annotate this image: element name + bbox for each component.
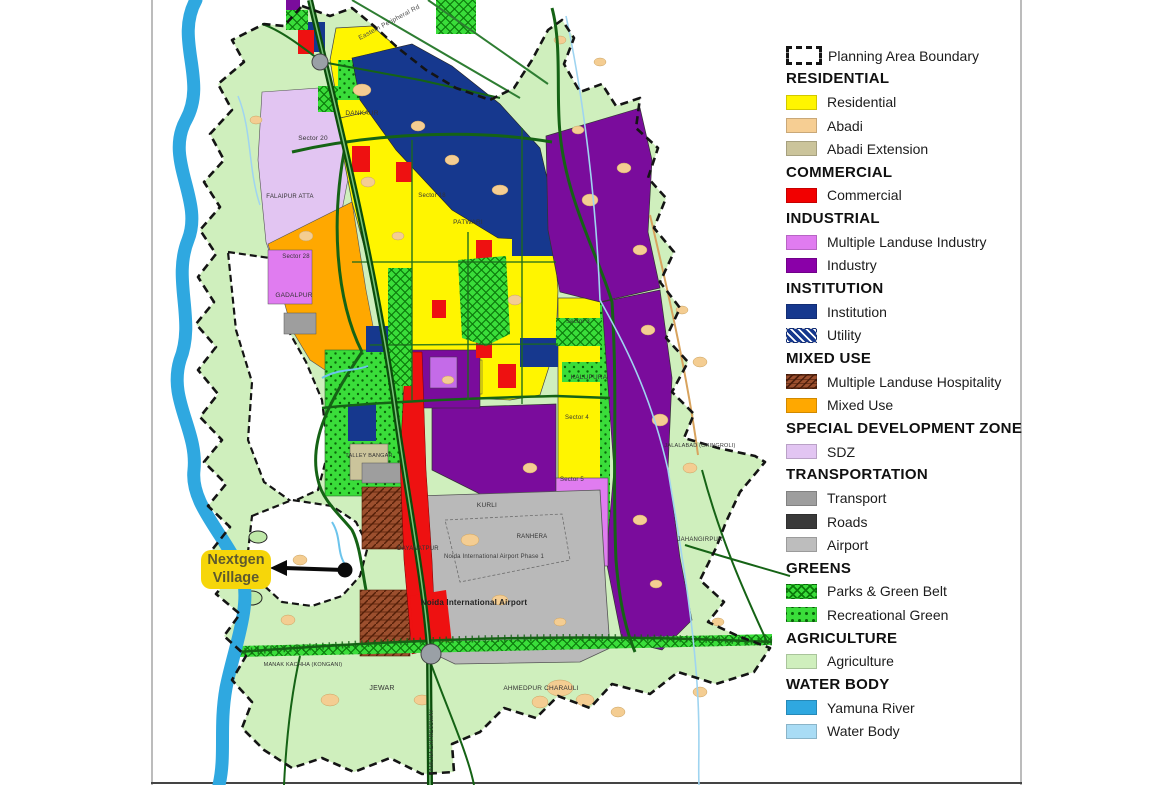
- map-label: YAMUNA EXPRESSWAY: [429, 709, 435, 775]
- legend-swatch: [786, 700, 817, 715]
- legend-item-label: Abadi Extension: [827, 141, 928, 157]
- legend-swatch: [786, 537, 817, 552]
- legend-header-agriculture: AGRICULTURE: [786, 626, 1030, 649]
- legend-item-label: Mixed Use: [827, 397, 893, 413]
- zone-commercial: [396, 162, 412, 182]
- interchange: [421, 644, 441, 664]
- legend-item-label: SDZ: [827, 444, 855, 460]
- legend-swatch: [786, 398, 817, 413]
- map-label: MANAK KACHHA (KONGANI): [264, 662, 343, 668]
- legend-header-water-body: WATER BODY: [786, 673, 1030, 696]
- zone-transport: [284, 313, 316, 334]
- legend-item-sdz: SDZ: [786, 440, 1030, 463]
- legend-item-label: Abadi: [827, 118, 863, 134]
- map-label: DAYANATPUR: [397, 546, 439, 552]
- legend: Planning Area Boundary RESIDENTIALReside…: [786, 44, 1030, 743]
- legend-swatch: [786, 444, 817, 459]
- legend-swatch: [786, 188, 817, 203]
- map-label: JEWAR: [369, 685, 394, 692]
- map-label: Sector 20: [298, 135, 328, 142]
- map-label: GADALPUR: [275, 292, 312, 299]
- legend-swatch: [786, 258, 817, 273]
- map-label: AHMEDPUR CHARAULI: [503, 685, 578, 692]
- map-label: PATWARI: [453, 219, 483, 226]
- nextgen-village-callout: Nextgen Village: [201, 550, 271, 589]
- planning-boundary-icon: [786, 46, 822, 65]
- legend-swatch: [786, 514, 817, 529]
- map-label: JAHANGIRPUR: [677, 537, 723, 543]
- legend-item-label: Parks & Green Belt: [827, 583, 947, 599]
- legend-item-institution: Institution: [786, 300, 1030, 323]
- map-label: Sector 28: [282, 254, 310, 260]
- map-label: TALLEY BANGAR: [345, 453, 392, 459]
- legend-item-label: Yamuna River: [827, 700, 915, 716]
- legend-item-water-body: Water Body: [786, 720, 1030, 743]
- legend-header-industrial: INDUSTRIAL: [786, 207, 1030, 230]
- map-label: Noida International Airport Phase 1: [444, 554, 545, 560]
- legend-item-agriculture: Agriculture: [786, 650, 1030, 673]
- legend-item-label: Institution: [827, 304, 887, 320]
- legend-swatch: [786, 141, 817, 156]
- legend-item-abadi: Abadi: [786, 114, 1030, 137]
- zone-industry: [286, 0, 300, 10]
- map-label: KURLI: [477, 502, 497, 509]
- zone-commercial: [352, 146, 370, 172]
- map-label: Sector 3: [566, 319, 590, 325]
- legend-item-label: Industry: [827, 257, 877, 273]
- legend-item-label: Utility: [827, 327, 861, 343]
- legend-item-roads: Roads: [786, 510, 1030, 533]
- legend-swatch: [786, 584, 817, 599]
- callout-line2: Village: [213, 570, 259, 587]
- legend-boundary-label: Planning Area Boundary: [828, 48, 979, 64]
- map-label: Noida International Airport: [421, 598, 528, 607]
- legend-swatch: [786, 724, 817, 739]
- screenshot-stage: DANKAURSector 20FALAIPUR ATTASector 28GA…: [0, 0, 1170, 785]
- legend-boundary-row: Planning Area Boundary: [786, 44, 1030, 67]
- legend-item-recreational-green: Recreational Green: [786, 603, 1030, 626]
- legend-header-commercial: COMMERCIAL: [786, 160, 1030, 183]
- legend-item-commercial: Commercial: [786, 184, 1030, 207]
- annotation-dot: [338, 563, 353, 578]
- legend-header-mixed-use: MIXED USE: [786, 347, 1030, 370]
- zone-institution: [348, 404, 376, 441]
- legend-header-special-development-zone: SPECIAL DEVELOPMENT ZONE: [786, 417, 1030, 440]
- legend-sections: RESIDENTIALResidentialAbadiAbadi Extensi…: [786, 67, 1030, 743]
- legend-item-abadi-extension: Abadi Extension: [786, 137, 1030, 160]
- legend-swatch: [786, 374, 817, 389]
- zone-ml-industry: [430, 357, 457, 388]
- green-blob: [249, 531, 267, 543]
- zone-commercial: [432, 300, 446, 318]
- zone-institution: [520, 338, 558, 367]
- zone-parks: [458, 256, 510, 346]
- legend-swatch: [786, 118, 817, 133]
- interchange: [312, 54, 328, 70]
- legend-swatch: [786, 491, 817, 506]
- map-label: KALUPURA: [571, 374, 608, 381]
- legend-swatch: [786, 304, 817, 319]
- legend-header-greens: GREENS: [786, 557, 1030, 580]
- legend-item-industry: Industry: [786, 254, 1030, 277]
- legend-item-label: Commercial: [827, 187, 902, 203]
- legend-item-label: Multiple Landuse Hospitality: [827, 374, 1001, 390]
- legend-swatch: [786, 95, 817, 110]
- legend-item-label: Water Body: [827, 723, 900, 739]
- legend-item-parks-green-belt: Parks & Green Belt: [786, 580, 1030, 603]
- legend-item-multiple-landuse-industry: Multiple Landuse Industry: [786, 230, 1030, 253]
- legend-swatch: [786, 607, 817, 622]
- zone-transport: [362, 463, 404, 483]
- map-label: FALAIPUR ATTA: [266, 194, 313, 200]
- map-label: Sector 5: [560, 477, 584, 483]
- zone-hospitality: [362, 487, 404, 549]
- map-label: Sector 4: [565, 415, 589, 421]
- legend-header-institution: INSTITUTION: [786, 277, 1030, 300]
- legend-item-label: Transport: [827, 490, 886, 506]
- legend-header-residential: RESIDENTIAL: [786, 67, 1030, 90]
- map-label: DANKAUR: [345, 110, 378, 117]
- legend-item-label: Roads: [827, 514, 867, 530]
- legend-item-mixed-use: Mixed Use: [786, 393, 1030, 416]
- legend-item-label: Agriculture: [827, 653, 894, 669]
- legend-item-residential: Residential: [786, 91, 1030, 114]
- legend-item-label: Recreational Green: [827, 607, 948, 623]
- legend-swatch: [786, 654, 817, 669]
- zone-commercial: [498, 364, 516, 388]
- map-label: Sector 18: [418, 193, 446, 199]
- legend-item-label: Multiple Landuse Industry: [827, 234, 987, 250]
- legend-item-utility: Utility: [786, 324, 1030, 347]
- legend-item-yamuna-river: Yamuna River: [786, 696, 1030, 719]
- legend-item-airport: Airport: [786, 533, 1030, 556]
- legend-item-multiple-landuse-hospitality: Multiple Landuse Hospitality: [786, 370, 1030, 393]
- legend-item-label: Airport: [827, 537, 868, 553]
- legend-swatch: [786, 235, 817, 250]
- map-label: JALALABAD (CHINGROLI): [664, 443, 735, 449]
- legend-item-transport: Transport: [786, 487, 1030, 510]
- legend-item-label: Residential: [827, 94, 896, 110]
- legend-swatch: [786, 328, 817, 343]
- callout-line1: Nextgen: [207, 552, 264, 569]
- legend-header-transportation: TRANSPORTATION: [786, 463, 1030, 486]
- map-label: RANHERA: [517, 534, 548, 540]
